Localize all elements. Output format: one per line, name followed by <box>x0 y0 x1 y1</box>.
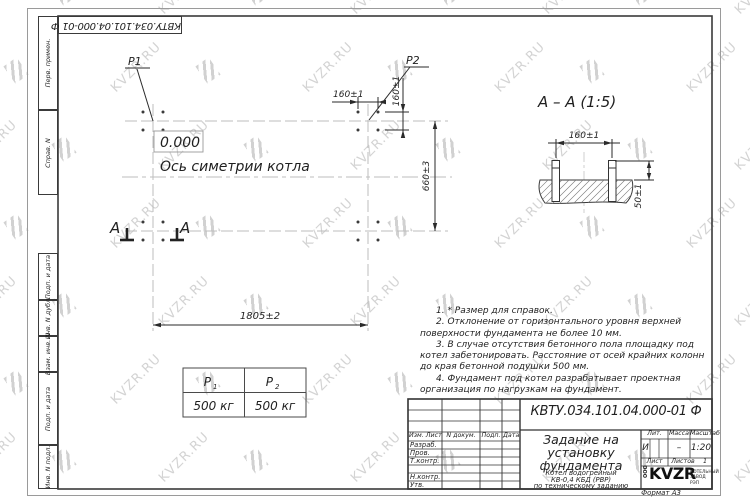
side-label: Взам. инв. N <box>44 333 52 375</box>
plan-p1-label: P1 <box>128 55 142 68</box>
elevation-text: 0.000 <box>160 135 200 151</box>
drawing-sheet: KVZR.RUKVZR.RUKVZR.RUKVZR.RUKVZR.RUKVZR.… <box>0 0 750 500</box>
side-box-inv-dubl: Инв. N дубл. <box>38 300 58 336</box>
title-block-subtitle: Котел водогрейный КВ-0,4 КБД (РВР) по те… <box>521 470 641 490</box>
side-box-sprav-n: Справ. N <box>38 110 58 195</box>
side-box-podp-data-2: Подп. и дата <box>38 372 58 445</box>
dim-row-spacing-text: 660±3 <box>422 161 432 192</box>
section-letter-left: А <box>109 219 120 237</box>
side-box-vzam-inv: Взам. инв. N <box>38 336 58 372</box>
tb-mass-value: – <box>668 444 690 453</box>
section-dimensions <box>548 139 654 180</box>
tb-lit-value: И <box>641 444 650 453</box>
loads-col1-sub: 1 <box>213 383 217 391</box>
side-box-inv-podl: Инв. N подл. <box>38 445 58 489</box>
tb-scale-label: Масштаб <box>690 431 712 438</box>
loads-col2-value: 500 кг <box>255 399 296 413</box>
tb-sheets-value: 1 <box>698 459 712 466</box>
tb-hdr-podp: Подп. <box>481 433 501 440</box>
tb-mass-label: Масса <box>668 431 690 438</box>
tb-lit-label: Лит. <box>641 431 668 438</box>
tb-role-utv: Утв. <box>410 482 424 489</box>
plan-dimensions <box>153 78 437 327</box>
side-box-podp-data-1: Подп. и дата <box>38 253 58 300</box>
tb-hdr-data: Дата <box>503 433 519 440</box>
notes-block: 1. * Размер для справок. 2. Отклонение о… <box>420 306 714 396</box>
tb-role-tkontr: Т.контр. <box>410 458 439 465</box>
company-logo: KVZR <box>649 466 691 483</box>
note-4: 4. Фундамент под котел разрабатывает про… <box>420 374 714 397</box>
drawing-linework: P1 P2 160±1 160±1 660±3 <box>0 0 750 500</box>
loads-col1-value: 500 кг <box>193 399 234 413</box>
plan-p2-label: P2 <box>406 54 420 67</box>
side-label: Подп. и дата <box>44 254 52 298</box>
section-dim-protrusion-text: 50±1 <box>634 184 644 209</box>
side-label: Справ. N <box>44 138 52 168</box>
company-name-line2: ЗАВОД РЭП <box>690 475 714 486</box>
note-3: 3. В случае отсутствия бетонного пола пл… <box>420 340 714 374</box>
loads-col2-head: P <box>266 375 274 389</box>
outer-border <box>28 9 721 496</box>
section-cut-ticks <box>120 228 184 240</box>
top-stamp-box: КВТУ.034.101.04.000-01 Ф <box>58 16 182 34</box>
title-block-doc-number: КВТУ.034.101.04.000-01 Ф <box>521 405 711 419</box>
format-note: Формат А3 <box>618 490 704 497</box>
tb-hdr-izm-list: Изм. Лист <box>409 433 442 440</box>
section-dim-spacing-text: 160±1 <box>569 131 599 141</box>
top-stamp-doc-number: КВТУ.034.101.04.000-01 Ф <box>59 17 181 33</box>
subtitle-line-3: по техническому заданию <box>521 483 641 490</box>
tb-scale-value: 1:20 <box>690 444 712 453</box>
side-label: Подп. и дата <box>44 386 52 430</box>
note-2: 2. Отклонение от горизонтального уровня … <box>420 317 714 340</box>
side-box-perv-primen: Перв. примен. <box>38 16 58 110</box>
dim-bolt-y-text: 160±1 <box>392 76 402 106</box>
loads-col1-head: P <box>204 375 212 389</box>
company-name: КОТЕЛЬНЫЙ ЗАВОД РЭП <box>690 470 714 486</box>
symmetry-axis-label: Ось симетрии котла <box>160 159 310 175</box>
title-block-title: Задание на установку фундамента <box>521 433 641 472</box>
tb-hdr-n-dokum: N докум. <box>443 433 479 440</box>
anchor-bolt-points <box>142 111 380 242</box>
section-view-title: А – А (1:5) <box>537 93 616 111</box>
side-label: Перв. примен. <box>44 39 52 88</box>
note-1: 1. * Размер для справок. <box>420 306 714 317</box>
loads-col2-sub: 2 <box>275 383 280 391</box>
side-label: Инв. N подл. <box>44 446 52 489</box>
section-letter-right: А <box>179 219 190 237</box>
dim-length-text: 1805±2 <box>240 311 280 322</box>
load-leaders <box>125 67 429 121</box>
dim-bolt-x-text: 160±1 <box>333 90 363 100</box>
